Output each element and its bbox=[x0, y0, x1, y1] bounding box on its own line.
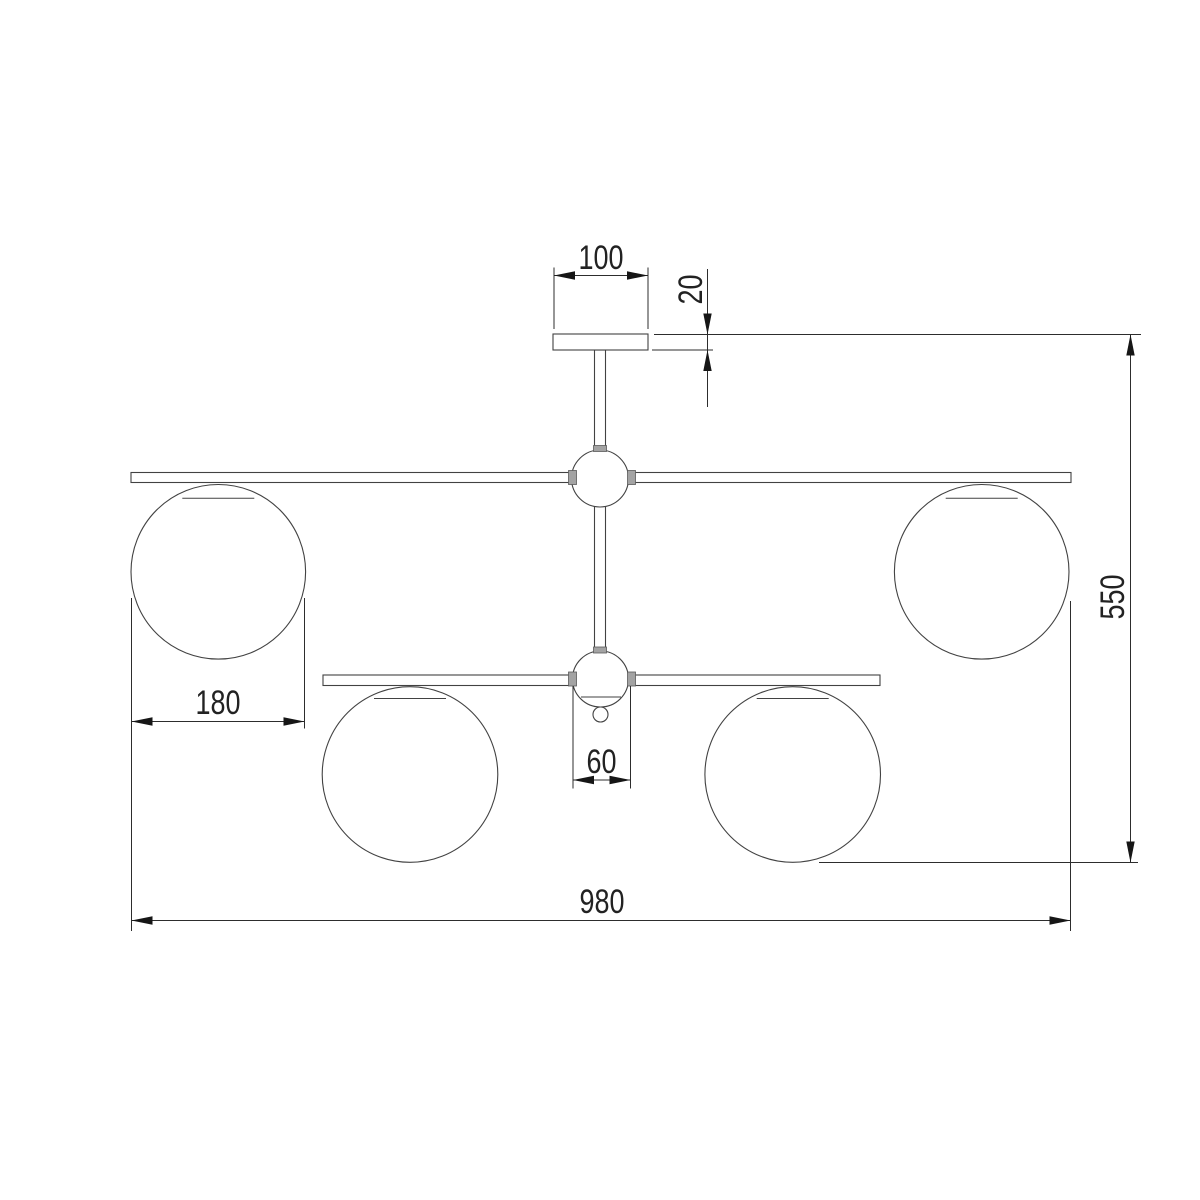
finial-knob bbox=[593, 707, 608, 722]
connector-lower-hub-right bbox=[628, 672, 636, 686]
dim-canopy-thickness-arrowhead-1 bbox=[703, 314, 711, 335]
dim-canopy-thickness-label: 20 bbox=[672, 275, 710, 305]
dim-canopy-width: 100 bbox=[554, 239, 648, 329]
connector-lower-hub-left bbox=[569, 672, 577, 686]
fixture bbox=[131, 334, 1071, 862]
globe-upper-right bbox=[894, 485, 1069, 660]
dim-canopy-width-label: 100 bbox=[579, 239, 624, 277]
dim-overall-height-arrowhead-1 bbox=[1126, 335, 1134, 356]
connector-upper-hub-right bbox=[628, 471, 636, 485]
drawing-canvas: 1002055098018060 bbox=[0, 0, 1200, 1200]
dim-overall-height-arrowhead-2 bbox=[1126, 842, 1134, 863]
connector-upper-hub-left bbox=[569, 471, 577, 485]
dim-canopy-width-arrowhead-2 bbox=[627, 271, 648, 279]
dim-canopy-thickness: 20 bbox=[652, 269, 1141, 407]
dim-globe-diameter-arrowhead-1 bbox=[132, 717, 153, 725]
dim-canopy-thickness-arrowhead-2 bbox=[703, 350, 711, 371]
stem-middle bbox=[595, 505, 606, 653]
hub-ball-upper bbox=[572, 450, 629, 507]
dim-overall-height-label: 550 bbox=[1094, 575, 1132, 620]
dim-overall-width-arrowhead-1 bbox=[132, 916, 153, 924]
dim-overall-width-label: 980 bbox=[580, 883, 625, 921]
connector-upper-hub-top bbox=[594, 446, 607, 452]
technical-drawing: 1002055098018060 bbox=[0, 0, 1200, 1200]
dim-globe-diameter-arrowhead-2 bbox=[284, 717, 305, 725]
globe-lower-right bbox=[705, 687, 881, 863]
dim-globe-diameter-label: 180 bbox=[196, 684, 241, 722]
dim-canopy-width-arrowhead-1 bbox=[554, 271, 575, 279]
dim-overall-width-arrowhead-2 bbox=[1050, 916, 1071, 924]
hub-ball-lower bbox=[573, 651, 629, 707]
dim-hub-diameter-label: 60 bbox=[587, 743, 617, 781]
connector-lower-hub-top bbox=[594, 647, 607, 653]
globe-lower-left bbox=[322, 687, 498, 863]
canopy-plate bbox=[553, 334, 648, 350]
stem-upper bbox=[595, 350, 606, 451]
globe-upper-left bbox=[131, 485, 306, 660]
